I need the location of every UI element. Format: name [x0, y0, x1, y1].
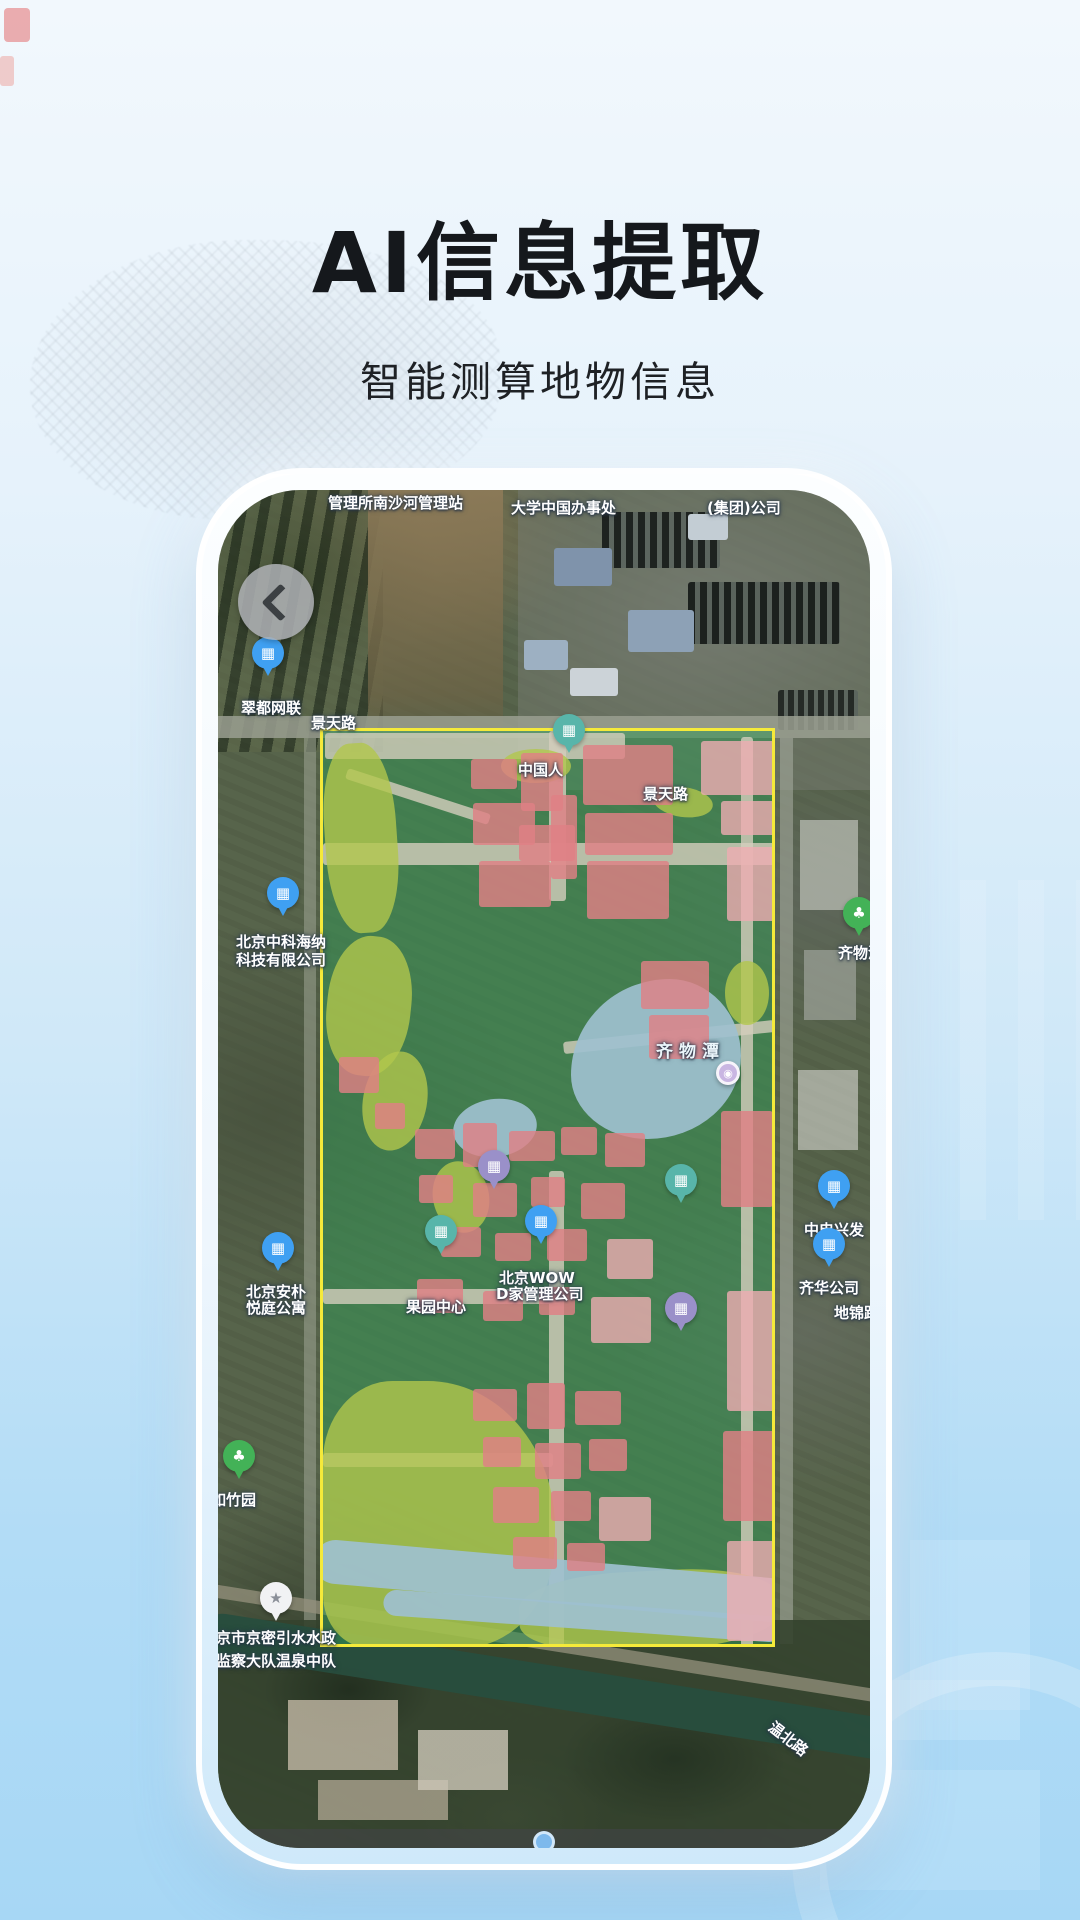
map-building	[570, 668, 618, 696]
building-pin[interactable]: ▦	[262, 1232, 296, 1276]
pin-tail	[823, 1256, 835, 1267]
map-building	[628, 610, 694, 652]
overlay-region-red	[575, 1391, 621, 1425]
pin-tail	[272, 1260, 284, 1271]
building-pin[interactable]: ▦	[818, 1170, 852, 1214]
overlay-region-red	[721, 1111, 773, 1207]
overlay-region-red	[479, 861, 551, 907]
map-label: 管理所南沙河管理站	[328, 492, 463, 513]
overlay-region-red	[641, 961, 709, 1009]
overlay-region-pink	[607, 1239, 653, 1279]
transit-pin[interactable]: ◉	[716, 1061, 742, 1087]
building-pin[interactable]: ▦	[478, 1150, 512, 1194]
map-label: D家管理公司	[496, 1283, 583, 1304]
building-pin[interactable]: ▦	[252, 637, 286, 681]
map-label: 地锦路	[834, 1302, 870, 1323]
overlay-region-pink	[727, 1541, 775, 1641]
overlay-region-red	[551, 1491, 591, 1521]
overlay-region-red	[587, 861, 669, 919]
overlay-region-pink	[701, 741, 775, 795]
pin-tail	[675, 1320, 687, 1331]
overlay-region-red	[585, 813, 673, 855]
page-subtitle: 智能测算地物信息	[0, 348, 1080, 408]
overlay-region-pink	[727, 1291, 775, 1411]
map-label: 齐物潭	[656, 1037, 725, 1062]
overlay-region-red	[581, 1183, 625, 1219]
pin-tail	[262, 665, 274, 676]
pin-tail	[270, 1610, 282, 1621]
overlay-region-red	[551, 795, 577, 879]
overlay-region-red	[509, 1131, 555, 1161]
overlay-region-red	[535, 1443, 581, 1479]
overlay-region-red	[531, 1177, 565, 1207]
building-pin[interactable]: ▦	[813, 1228, 847, 1272]
satellite-map-viewport[interactable]: 管理所南沙河管理站大学中国办事处(集团)公司翠都网联景天路景天路中国人北京中科海…	[218, 490, 870, 1848]
overlay-region-pink	[727, 847, 775, 921]
tree-pin[interactable]: ♣	[843, 897, 870, 941]
pin-tail	[488, 1178, 500, 1189]
pin-tail	[853, 925, 865, 936]
overlay-region-red	[513, 1537, 557, 1569]
map-label: (集团)公司	[707, 497, 781, 518]
map-label: 景天路	[643, 783, 688, 804]
building-pin[interactable]: ▦	[665, 1164, 699, 1208]
pin-tail	[828, 1198, 840, 1209]
pin-tail	[233, 1468, 245, 1479]
ai-extraction-selection	[320, 728, 775, 1647]
promo-page: AI信息提取 智能测算地物信息 管理所南	[0, 0, 1080, 1920]
background-street-pattern	[960, 880, 1080, 1220]
overlay-region-red	[567, 1543, 605, 1571]
overlay-region-red	[375, 1103, 405, 1129]
overlay-region-pink	[591, 1297, 651, 1343]
current-location-icon	[533, 1831, 555, 1848]
overlay-region-red	[415, 1129, 455, 1159]
chevron-left-icon	[261, 583, 299, 621]
tree-pin[interactable]: ♣	[223, 1440, 257, 1484]
map-road	[304, 738, 316, 1644]
background-accent-mark	[4, 8, 30, 42]
map-building	[554, 548, 612, 586]
map-label: 悦庭公寓	[246, 1297, 306, 1318]
overlay-region-red	[339, 1057, 379, 1093]
map-label: 果园中心	[406, 1296, 466, 1317]
map-label: 京市京密引水水政	[218, 1627, 336, 1648]
building-pin[interactable]: ▦	[267, 877, 301, 921]
map-label: 如竹园	[218, 1489, 256, 1510]
map-label: 中国人	[518, 759, 563, 780]
overlay-region-red	[723, 1431, 775, 1521]
overlay-region-red	[471, 759, 517, 789]
map-bottom-bar[interactable]	[218, 1829, 870, 1848]
map-factory-building	[688, 582, 840, 644]
overlay-region-red	[473, 1389, 517, 1421]
overlay-region-red	[527, 1383, 565, 1429]
map-building	[524, 640, 568, 670]
map-label: 大学中国办事处	[511, 497, 616, 518]
back-button[interactable]	[238, 564, 314, 640]
overlay-region-red	[561, 1127, 597, 1155]
overlay-region-red	[589, 1439, 627, 1471]
overlay-region-red	[493, 1487, 539, 1523]
pin-tail	[563, 742, 575, 753]
map-buildings-right	[794, 790, 870, 1210]
building-pin[interactable]: ▦	[425, 1215, 459, 1259]
building-pin[interactable]: ▦	[525, 1205, 559, 1249]
building-pin[interactable]: ▦	[553, 714, 587, 758]
building-pin[interactable]: ▦	[665, 1292, 699, 1336]
map-label: 监察大队温泉中队	[218, 1650, 336, 1671]
overlay-region-crop	[725, 961, 769, 1025]
map-label: 齐华公司	[799, 1277, 859, 1298]
overlay-region-red	[483, 1437, 521, 1467]
pin-tail	[675, 1192, 687, 1203]
page-title: AI信息提取	[0, 196, 1080, 317]
overlay-region-pink	[721, 801, 775, 835]
map-label: 翠都网联	[241, 697, 301, 718]
map-road	[780, 738, 793, 1644]
overlay-region-red	[419, 1175, 453, 1203]
overlay-region-pink	[599, 1497, 651, 1541]
background-accent-mark	[0, 56, 14, 86]
map-label: 科技有限公司	[236, 949, 326, 970]
map-field-area	[368, 490, 503, 746]
transit-icon: ◉	[716, 1061, 740, 1085]
overlay-region-red	[605, 1133, 645, 1167]
pin-tail	[277, 905, 289, 916]
pin-tail	[535, 1233, 547, 1244]
pin-tail	[435, 1243, 447, 1254]
phone-mockup: 管理所南沙河管理站大学中国办事处(集团)公司翠都网联景天路景天路中国人北京中科海…	[196, 468, 892, 1870]
map-label: 景天路	[311, 712, 356, 733]
overlay-region-crop	[320, 741, 404, 936]
map-label: 齐物潭	[838, 942, 870, 963]
star-pin[interactable]: ★	[260, 1582, 294, 1626]
